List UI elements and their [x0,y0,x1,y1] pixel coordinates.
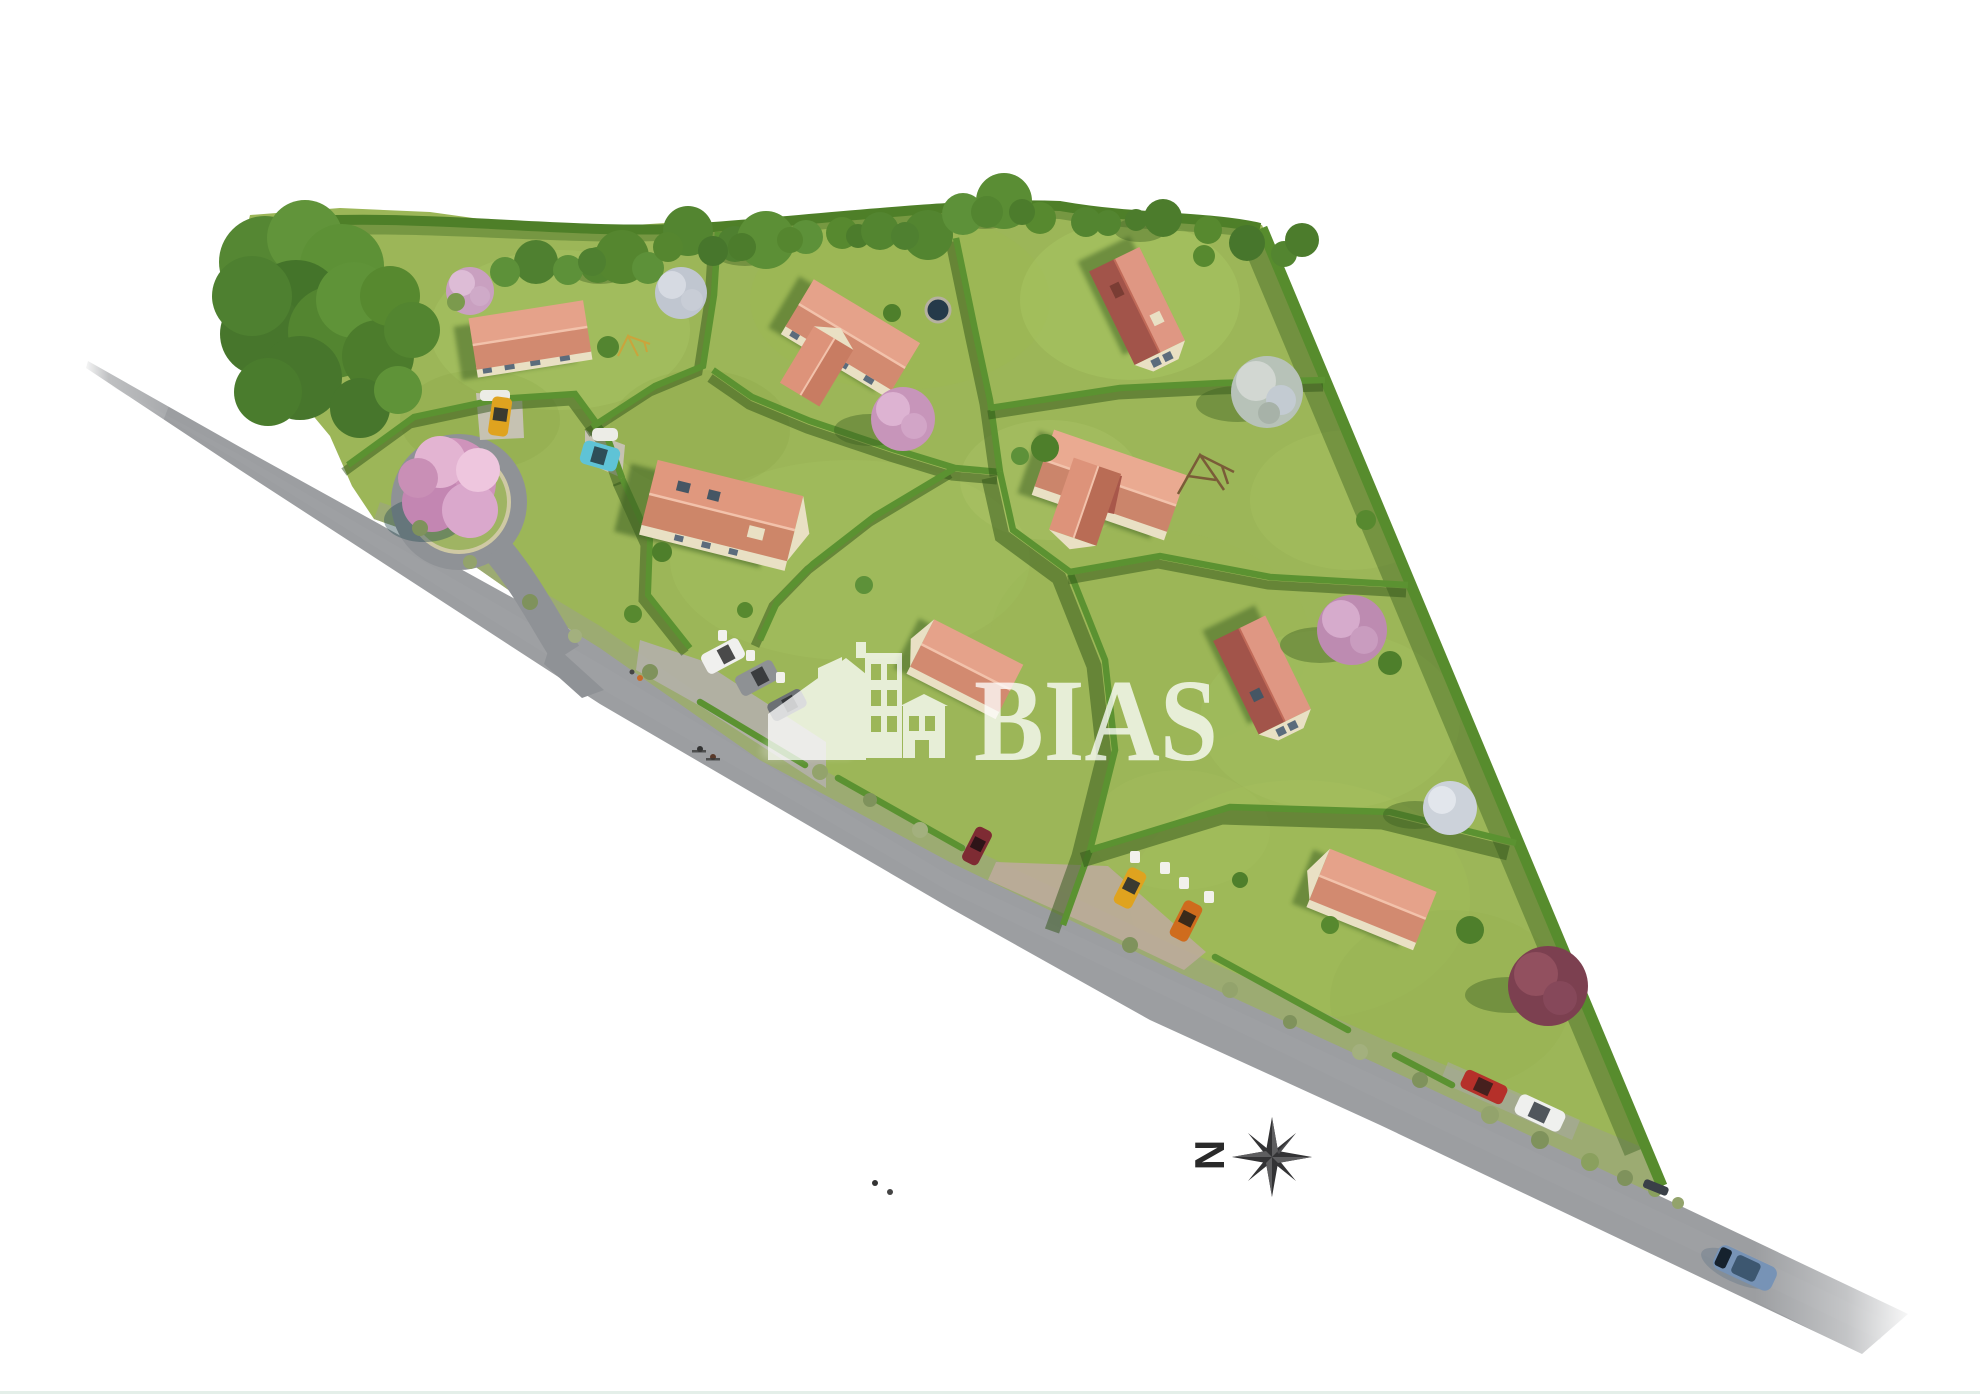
svg-text:BIAS: BIAS [974,655,1218,786]
svg-text:N: N [1186,1140,1233,1170]
